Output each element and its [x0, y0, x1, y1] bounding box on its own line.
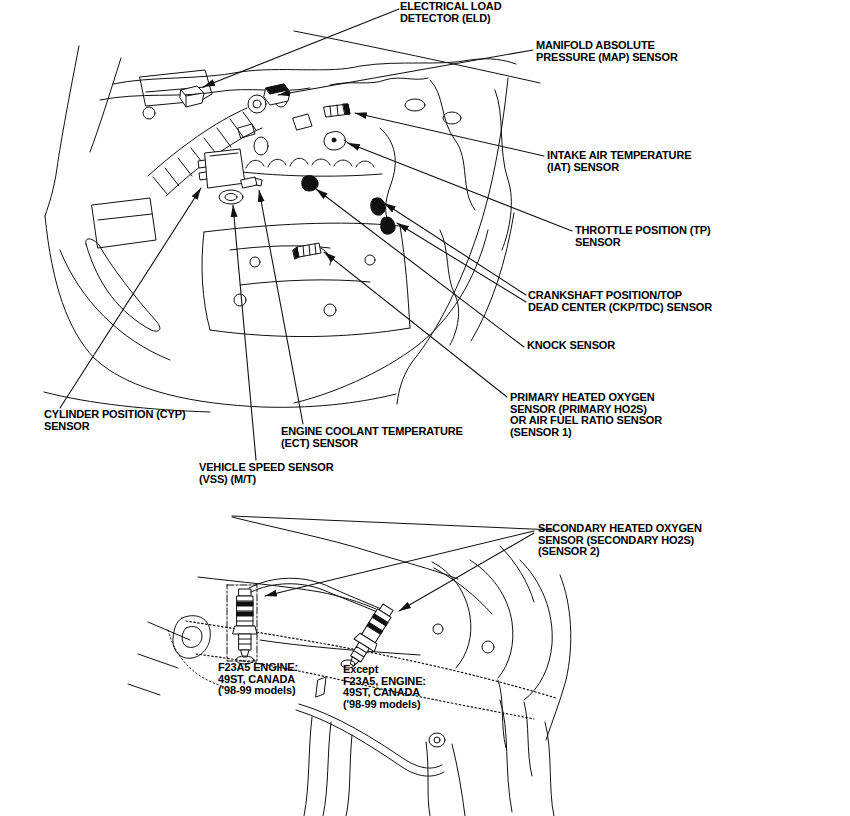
hanging-line-7: [545, 722, 554, 816]
callout-tp: THROTTLE POSITION (TP) SENSOR: [575, 225, 710, 248]
sway-bar-line-2: [299, 704, 442, 768]
o2-wire-line-2: [251, 584, 382, 614]
splash-plate-left: [202, 232, 210, 330]
hanging-line-4: [426, 742, 430, 816]
manifold-runner-arcs: [246, 158, 374, 168]
firewall-hose-2: [495, 90, 511, 250]
hanging-line-6: [500, 700, 512, 812]
callout-engine-variant-left: F23A5 ENGINE: 49ST, CANADA ('98-99 model…: [218, 662, 298, 697]
callout-cyp: CYLINDER POSITION (CYP) SENSOR: [44, 409, 185, 432]
callout-map: MANIFOLD ABSOLUTE PRESSURE (MAP) SENSOR: [536, 40, 678, 63]
frame-drop-line-2: [524, 702, 532, 776]
subframe-curve-3: [520, 560, 552, 700]
tp-sensor-hub: [332, 138, 336, 142]
plate-hole-3: [365, 255, 375, 265]
hood-top-edge: [294, 31, 540, 83]
frame-bushing: [429, 733, 445, 747]
engine-detail-lines: [60, 78, 511, 360]
callout-knock: KNOCK SENSOR: [527, 340, 615, 352]
leader-cyp: [60, 188, 201, 408]
flange-dotted-arc: [168, 630, 222, 686]
fuel-filter: [254, 137, 268, 155]
cyp-distributor-box: [198, 149, 245, 188]
callout-ect: ENGINE COOLANT TEMPERATURE (ECT) SENSOR: [281, 426, 463, 449]
engine-bay-drawing: [44, 31, 540, 412]
callout-eld: ELECTRICAL LOAD DETECTOR (ELD): [400, 1, 501, 24]
hanging-line-1: [304, 717, 312, 816]
frame-bushing-hub: [434, 737, 440, 743]
ckp-tdc-sensor-1: [371, 198, 385, 215]
hose-clamp: [405, 99, 425, 111]
subframe-curve-1: [432, 562, 471, 668]
leader-iat: [355, 113, 544, 156]
leader-secondary-ho2s-1: [265, 531, 534, 596]
leader-secondary-ho2s-2: [399, 533, 534, 611]
vss-sensor: [219, 190, 243, 204]
throttle-pulley: [248, 95, 266, 113]
leader-ckp-tdc-1: [384, 203, 526, 295]
callout-engine-variant-right: Except F23A5, ENGINE: 49ST, CANADA ('98-…: [343, 664, 426, 710]
harness-line: [330, 78, 428, 85]
headlight-shape: [86, 239, 160, 331]
leader-eld: [203, 9, 399, 87]
subframe-curve-2: [470, 560, 513, 678]
eld-box: [180, 86, 204, 107]
splash-plate-bottom: [210, 328, 410, 337]
sensors-main: [180, 84, 395, 265]
frame-hole-2: [482, 641, 494, 653]
callout-iat: INTAKE AIR TEMPERATURE (IAT) SENSOR: [547, 150, 691, 173]
left-frame-diagonals: [128, 622, 190, 695]
callout-primary-ho2s: PRIMARY HEATED OXYGEN SENSOR (PRIMARY HO…: [510, 392, 662, 438]
firewall-hose-3: [440, 230, 459, 345]
cowl-line: [113, 59, 516, 84]
plate-detail-line-2: [240, 280, 370, 285]
callout-secondary-ho2s: SECONDARY HEATED OXYGEN SENSOR (SECONDAR…: [538, 523, 702, 558]
floor-pan-lower-edge: [232, 517, 458, 579]
o2-sensor-1: [233, 589, 257, 657]
leader-lines: [60, 9, 572, 611]
splash-plate-right: [400, 226, 410, 328]
throttle-pulley-hub: [253, 100, 261, 108]
reservoir-cap: [443, 112, 461, 124]
frame-drop-line-1: [498, 680, 506, 748]
left-fender-line: [45, 46, 79, 216]
floor-pan-left-edge: [198, 577, 376, 609]
o2-sensor-1-hex: [233, 626, 257, 634]
bracket-piece: [316, 677, 326, 697]
plate-hole-4: [250, 257, 260, 267]
engine-sensor-location-diagram: ELECTRICAL LOAD DETECTOR (ELD) MANIFOLD …: [0, 0, 850, 816]
leader-knock: [316, 189, 524, 347]
callout-ckp-tdc: CRANKSHAFT POSITION/TOP DEAD CENTER (CKP…: [528, 290, 712, 313]
sway-bar-line-1: [296, 710, 444, 776]
ignition-cap: [143, 107, 155, 119]
wheel-well-edge: [434, 546, 534, 614]
frame-hole-1: [433, 624, 443, 634]
hanging-line-5: [452, 744, 465, 816]
o2-sensor-1-cap: [239, 589, 251, 596]
floor-pan-top-edge: [232, 516, 554, 530]
leader-vss: [233, 205, 256, 460]
cowl-lines: [100, 59, 516, 100]
hanging-line-2: [323, 722, 331, 816]
tp-sensor: [324, 132, 352, 150]
hanging-line-3: [346, 735, 352, 816]
wheel-arch-inner: [60, 250, 170, 360]
suspension-lines: [296, 700, 554, 816]
o2-sensor-1-thread: [239, 634, 251, 650]
car-body-outline: [44, 31, 540, 412]
ckp-tdc-sensor-2: [381, 217, 395, 234]
pipe-seam-line: [260, 640, 420, 655]
callout-vss: VEHICLE SPEED SENSOR (VSS) (M/T): [199, 462, 334, 485]
left-fender-inner-line: [90, 58, 121, 152]
leader-tp: [348, 143, 572, 231]
primary-o2-sensor: [297, 243, 321, 257]
plate-hole-2: [324, 304, 336, 316]
plate-hole-1: [234, 294, 246, 306]
battery-box: [92, 198, 156, 248]
